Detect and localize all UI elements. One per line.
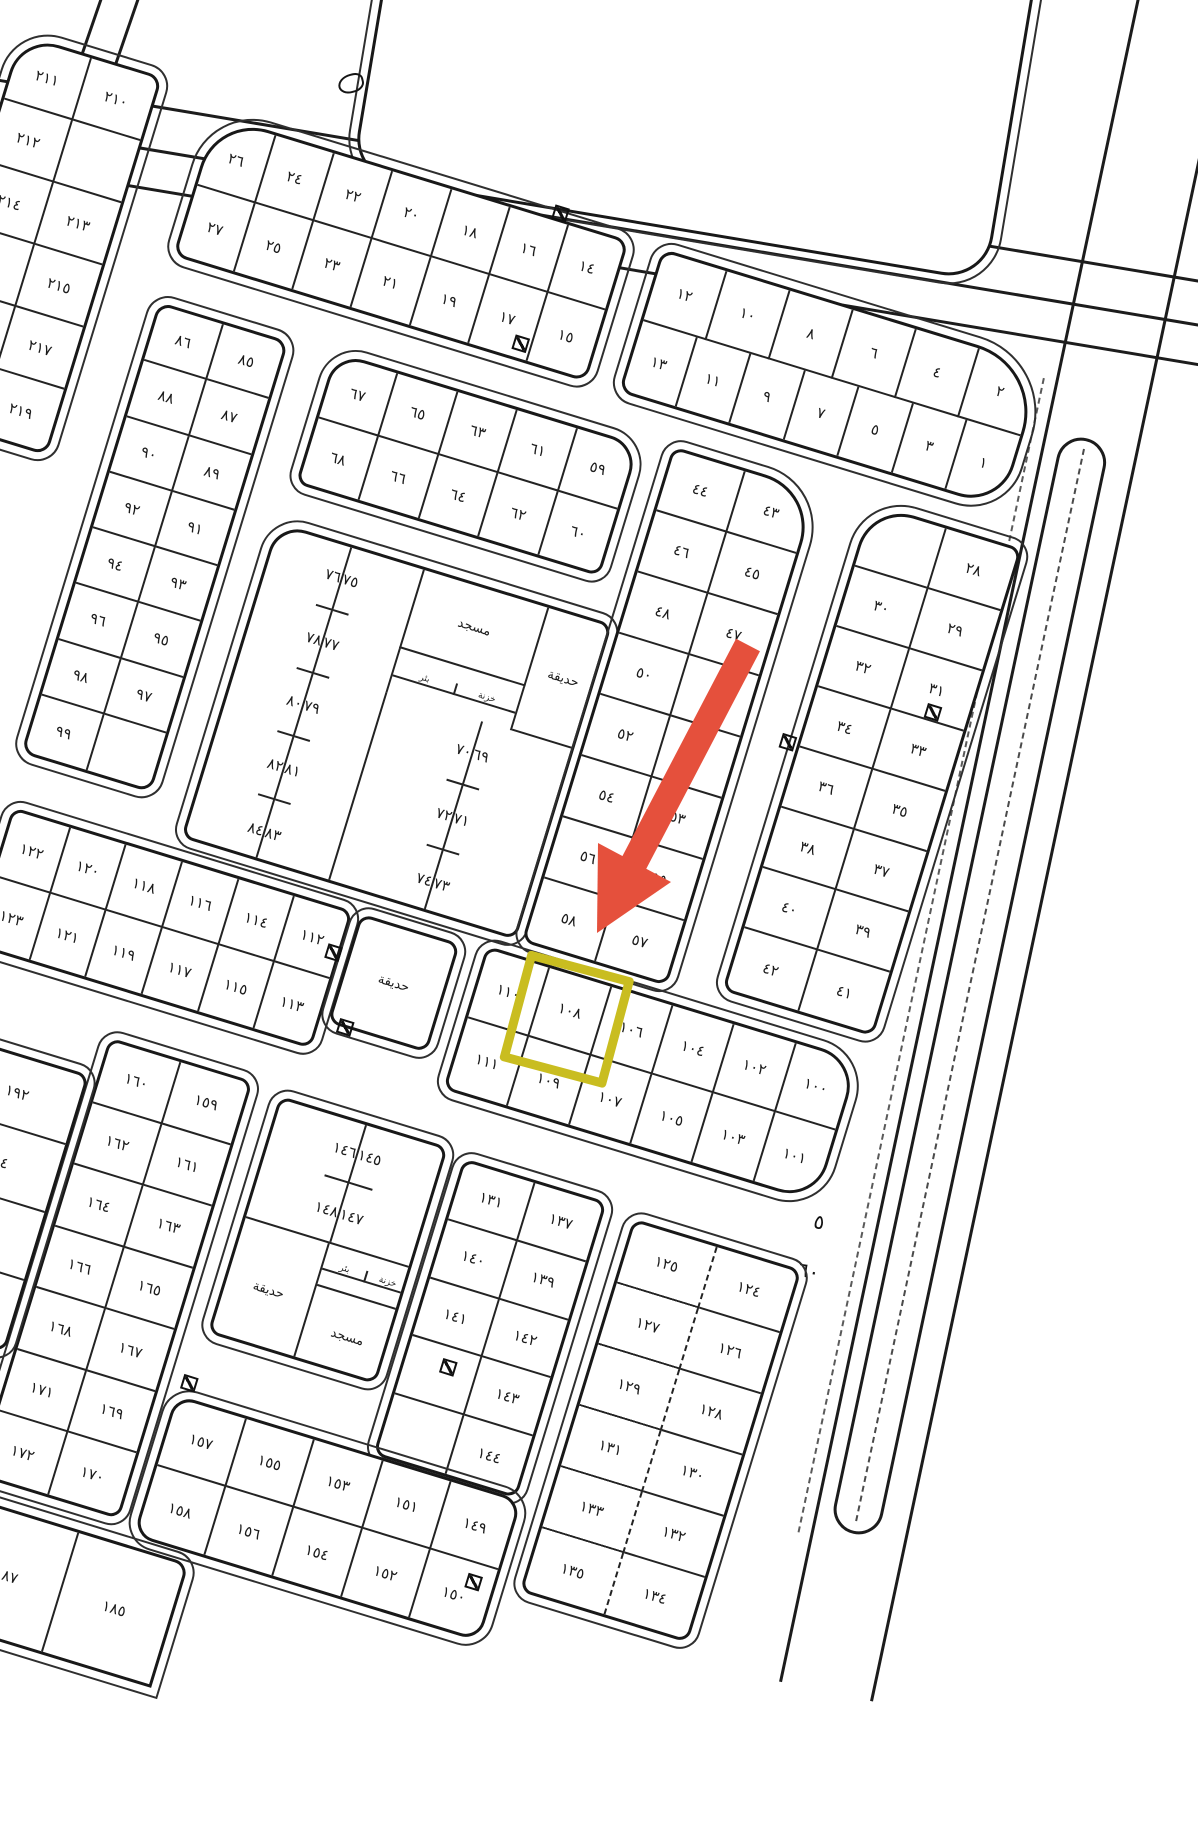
plot-number: ٢٧ [205, 217, 226, 239]
plot-number: ٥٩ [587, 457, 608, 479]
tank-cell: خزنة [365, 1271, 410, 1295]
plot-number: ١٠٣ [719, 1125, 747, 1149]
plot-number: ١٠ [737, 303, 758, 325]
plot-number: ٥١ [686, 746, 707, 768]
plot-number: ٨٥ [236, 350, 257, 372]
plot-number: ١٤٦ [331, 1137, 359, 1161]
gate-hatch-mark [180, 1374, 199, 1393]
plot-number: ١٥٤ [303, 1540, 331, 1564]
gate-hatch-mark [779, 733, 798, 752]
plot-row: ٨٤٨٣ [238, 795, 290, 868]
plot-number: ٦٥ [407, 402, 428, 424]
plot-number: ١٢٤ [735, 1277, 763, 1301]
plot-number: ٩٢ [122, 498, 143, 520]
road-label: ٥ ٦٠ [796, 1208, 832, 1285]
plot-number: ٢١٧ [26, 335, 54, 359]
plot-number: ١٧١ [28, 1378, 56, 1402]
plot-number: ٧ [815, 403, 828, 423]
plot-number: ٢١ [380, 271, 401, 293]
plot-number: ٢ [994, 382, 1007, 402]
plot-number: ٣٤ [834, 716, 855, 738]
plot-number: ١٢٥ [652, 1252, 680, 1276]
plot-number: ٢٤ [284, 166, 305, 188]
tank-label: خزنة [477, 690, 497, 705]
plot-number: ١٢٧ [634, 1313, 662, 1337]
plot-number: ١١٢ [298, 925, 326, 949]
plot-number: ١٧٠ [78, 1462, 106, 1486]
plot-number: ١١٥ [222, 974, 250, 998]
plot-number: ١٥٨ [166, 1498, 194, 1522]
plot-number: ٤٧ [723, 623, 744, 645]
plot-number: ١٨٥ [100, 1597, 128, 1621]
plot-number: ٣٥ [890, 799, 911, 821]
plot-number: ٧٩ [302, 696, 323, 718]
scanned-plat-map-page: { "page": { "type": "scanned cadastral s… [0, 0, 1198, 1600]
plot-number: ١٤٣ [493, 1384, 521, 1408]
plot-number: ٣١ [926, 679, 947, 701]
plot-number: ٩١ [185, 517, 206, 539]
gate-hatch-mark [336, 1018, 355, 1037]
plot-number: ١٣٥ [558, 1559, 586, 1583]
plot-number: ٩٤ [105, 553, 126, 575]
plot-number: ٤٥ [742, 562, 763, 584]
mosque-label: مسجد [329, 1325, 366, 1349]
plot-number: ١٦١ [173, 1152, 201, 1176]
plot-number: ١٦٣ [154, 1214, 182, 1238]
plot-number: ٢٦ [226, 149, 247, 171]
plot-number: ٩٩ [53, 722, 74, 744]
plot-number: ١٢ [674, 284, 695, 306]
plot-number: ١٣١ [596, 1436, 624, 1460]
plot-number: ١٤١ [441, 1305, 469, 1329]
plot-number: ٩٠ [139, 442, 160, 464]
plot-number: ٤٠ [779, 897, 800, 919]
plot-number: ١٣٤ [641, 1584, 669, 1608]
plot-number: ٤ [931, 362, 944, 382]
plot-number: ٧٧ [321, 633, 342, 655]
plot-number: ٣٢ [853, 656, 874, 678]
plot-number: ١٦ [518, 238, 539, 260]
plot-number: ١٢٣ [0, 906, 26, 930]
plot-number: ٤٦ [671, 540, 692, 562]
plot-number: ٢٠ [401, 202, 422, 224]
plot-number: ٢١١ [33, 66, 61, 90]
plot-number: ١٢١ [53, 923, 81, 947]
plot-number: ١١١ [473, 1050, 501, 1074]
plot-number: ٩٥ [151, 628, 172, 650]
plot-row: ٧٦٧٥ [316, 543, 368, 616]
plot-number: ١٩٢ [3, 1080, 31, 1104]
plot-number: ١٩ [439, 289, 460, 311]
plot-number: ٥٣ [667, 807, 688, 829]
plot-number: ٥٧ [629, 930, 650, 952]
plot-number: ٨٩ [202, 461, 223, 483]
plot-number: ٩ [761, 387, 774, 407]
plot-number: ٩٦ [88, 609, 109, 631]
plot-number: ٢١٩ [7, 398, 35, 422]
plot-number: ٦٤ [448, 485, 469, 507]
plot-number: ٢٨ [963, 558, 984, 580]
plot-row: ١٤٨١٤٧ [306, 1176, 372, 1249]
plot-number: ٣٧ [871, 859, 892, 881]
plot-number: ١٢٩ [615, 1374, 643, 1398]
plot-number: ٨ [804, 324, 817, 344]
plot-row: ٧٤٧٣ [407, 845, 459, 919]
plot-number: ٣ [923, 436, 936, 456]
plot-number: ١٥٢ [371, 1561, 399, 1585]
road-street-number: ٥ [812, 1209, 828, 1235]
plot-number: ٢١٥ [45, 273, 73, 297]
plot-number: ١٥٩ [192, 1091, 220, 1115]
plot-number: ١٤٧ [338, 1204, 366, 1228]
plot-number: ١٧ [497, 307, 518, 329]
plot-number: ٨٦ [173, 331, 194, 353]
plot-number: ١٦٦ [65, 1255, 93, 1279]
plot-number: ١٧٢ [9, 1441, 37, 1465]
plot-number: ١٤٢ [511, 1326, 539, 1350]
plot-number: ٥٤ [596, 785, 617, 807]
plot-number: ١٦٧ [116, 1338, 144, 1362]
plot-number: ٢٩ [945, 618, 966, 640]
plot-number: ٩٨ [71, 665, 92, 687]
plot-number: ١٦٢ [103, 1131, 131, 1155]
plot-number: ٥٢ [615, 724, 636, 746]
plot-number: ١١٣ [278, 992, 306, 1016]
plot-number: ١٢٢ [18, 839, 46, 863]
plot-number: ١٣٢ [660, 1522, 688, 1546]
plot-number: ١٤٥ [356, 1145, 384, 1169]
plot-number: ١٥٧ [187, 1429, 215, 1453]
plot-number: ١٢٦ [716, 1338, 744, 1362]
plot-number: ١٠٤ [679, 1036, 707, 1060]
plot-number: ٣٨ [798, 837, 819, 859]
plot-row: ٨٠٧٩ [277, 669, 329, 742]
plot-number: ١٥ [556, 325, 577, 347]
garden-label: حديقة [546, 666, 581, 690]
plot-number: ٦ [868, 343, 881, 363]
plot-number: ١٨ [460, 220, 481, 242]
plot-number: ٥٥ [648, 868, 669, 890]
plot-number: ٣٩ [853, 920, 874, 942]
plot-row: ٧٨٧٧ [296, 606, 348, 679]
plot-number: ٧٣ [431, 874, 452, 896]
plot-number: ٤٤ [690, 479, 711, 501]
plot-number: ٤٣ [761, 501, 782, 523]
plot-number: ١٠٥ [657, 1106, 685, 1130]
plot-number: ١١٩ [109, 940, 137, 964]
plot-number: ١٨٧ [0, 1563, 20, 1587]
plot-number: ٨٣ [263, 823, 284, 845]
plot-number: ١٠٠ [802, 1074, 830, 1098]
plot-number: ١٥٥ [255, 1450, 283, 1474]
plot-number: ١٣ [648, 353, 669, 375]
well-label: بئر [338, 1263, 351, 1276]
plot-number: ٧٥ [340, 570, 361, 592]
plot-number: ٩٧ [134, 684, 155, 706]
plot-number: ١٦٥ [135, 1276, 163, 1300]
plot-number: ٦٩ [471, 744, 492, 766]
plot-number: ١٤٨ [313, 1197, 341, 1221]
plot-number: ١٠١ [780, 1144, 808, 1168]
plot-row: ٧٠٦٩ [446, 716, 498, 790]
plot-number: ١٣٧ [547, 1210, 575, 1234]
plot-number: ١٥٣ [324, 1471, 352, 1495]
plot-number: ٥٨ [559, 909, 580, 931]
plot-number: ١٥١ [392, 1492, 420, 1516]
plot-number: ٥ [869, 420, 882, 440]
plot-number: ٤٩ [705, 684, 726, 706]
plot-number: ١٣١ [477, 1188, 505, 1212]
plot-number: ٢١٤ [0, 190, 24, 214]
plot-number: ٨٧ [219, 406, 240, 428]
plot-number: ٨١ [282, 759, 303, 781]
plot-number: ٢١٢ [14, 128, 42, 152]
plot-number: ٣٣ [908, 739, 929, 761]
plot-number: ١٣٣ [577, 1497, 605, 1521]
plot-number: ١٦٠ [122, 1069, 150, 1093]
handwritten-scribble-mark [336, 71, 366, 96]
plot-number: ١٩٤ [0, 1148, 11, 1172]
mosque-label: مسجد [456, 615, 493, 639]
plot-number: ٤٢ [760, 958, 781, 980]
plot-number: ٢١٣ [64, 211, 92, 235]
plot-number: ٢٢ [343, 184, 364, 206]
plot-number: ٢٥ [263, 235, 284, 257]
plot-number: ٣٠ [871, 596, 892, 618]
plot-number: ١٤٠ [459, 1246, 487, 1270]
road-street-width: ٦٠ [796, 1257, 822, 1285]
plot-number: ٦٧ [347, 384, 368, 406]
well-label: بئر [418, 673, 431, 686]
plot-number: ٤١ [834, 981, 855, 1003]
plot-number: ١٣٩ [529, 1268, 557, 1292]
plot-number: ٦٠ [568, 521, 589, 543]
plot-number: ١٤٩ [461, 1513, 489, 1537]
plot-number: ١٦٨ [47, 1316, 75, 1340]
plot-number: ١٤٤ [475, 1443, 503, 1467]
plot-number: ١١٧ [166, 957, 194, 981]
plot-number: ٦٦ [388, 466, 409, 488]
plot-number: ٥٠ [634, 663, 655, 685]
plot-number: ١١ [703, 369, 724, 391]
plot-number: ٢١٠ [102, 87, 130, 111]
plot-number: ١٣٠ [678, 1461, 706, 1485]
plot-number: ٦٢ [508, 503, 529, 525]
plot-number: ١١٤ [242, 907, 270, 931]
plot-number: ٨٨ [156, 386, 177, 408]
plot-number: ٦١ [527, 439, 548, 461]
plot-number: ٦٨ [328, 448, 349, 470]
plot-number: ٤٨ [653, 602, 674, 624]
plot-number: ١ [977, 453, 990, 473]
plot-number: ٥٦ [578, 846, 599, 868]
tank-cell: خزنة [455, 684, 519, 714]
well-cell: بئر [392, 665, 458, 695]
plot-number: ٢٣ [322, 253, 343, 275]
plot-number: ١٠٧ [596, 1087, 624, 1111]
tank-label: خزنة [378, 1275, 398, 1290]
plot-number: ٦٣ [467, 421, 488, 443]
plot-number: ١٥٦ [234, 1519, 262, 1543]
plot-number: ١٠٢ [740, 1055, 768, 1079]
plot-number: ١٦٩ [97, 1399, 125, 1423]
plot-row: ٨٢٨١ [258, 732, 310, 805]
garden-label: حديقة [251, 1278, 286, 1302]
plot-number: ١٤ [577, 256, 598, 278]
garden-label: حديقة [376, 971, 411, 995]
plot-number: ٧١ [451, 809, 472, 831]
plot-number: ١٢٠ [74, 856, 102, 880]
plot-number: ١٢٨ [697, 1400, 725, 1424]
plot-number: ١١٨ [130, 873, 158, 897]
well-cell: بئر [322, 1258, 369, 1283]
plot-row: ٧٢٧١ [426, 781, 478, 855]
plot-number: ١٦٤ [84, 1193, 112, 1217]
plot-number: ٩٣ [168, 573, 189, 595]
plot-number: ٣٦ [816, 777, 837, 799]
plot-number: ١١٦ [186, 890, 214, 914]
